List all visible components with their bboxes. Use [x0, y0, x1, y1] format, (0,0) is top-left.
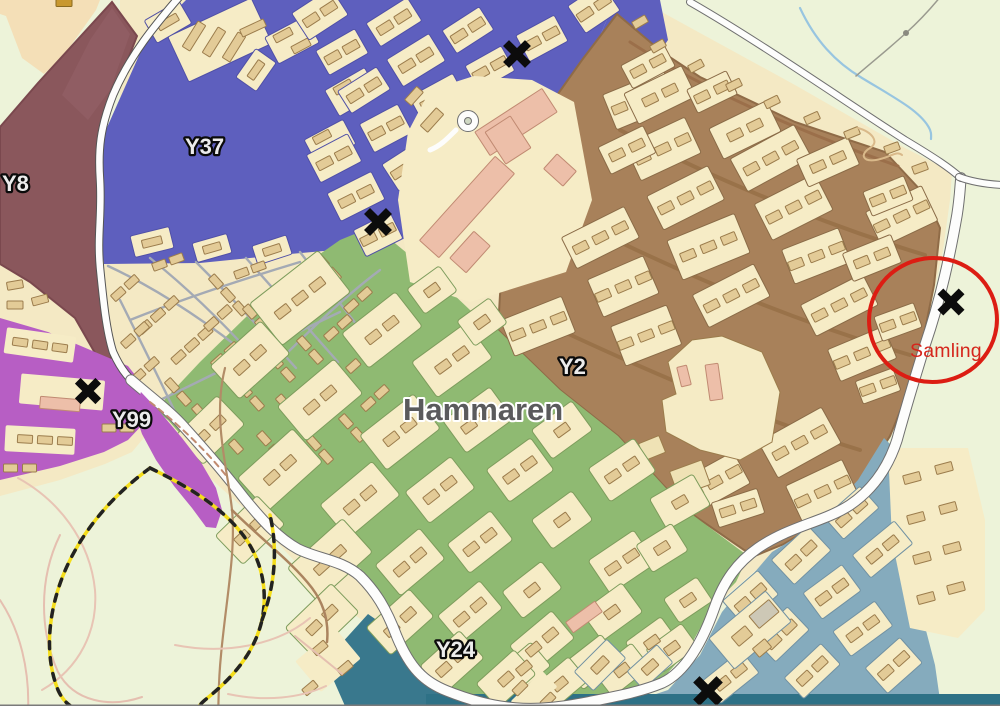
svg-text:Y2: Y2	[559, 354, 586, 379]
svg-text:Samling: Samling	[910, 340, 982, 362]
svg-text:Y8: Y8	[2, 171, 29, 196]
svg-text:Y99: Y99	[112, 407, 151, 432]
svg-text:Y24: Y24	[436, 637, 476, 662]
svg-text:Hammaren: Hammaren	[403, 392, 563, 427]
svg-text:Y37: Y37	[185, 134, 224, 159]
